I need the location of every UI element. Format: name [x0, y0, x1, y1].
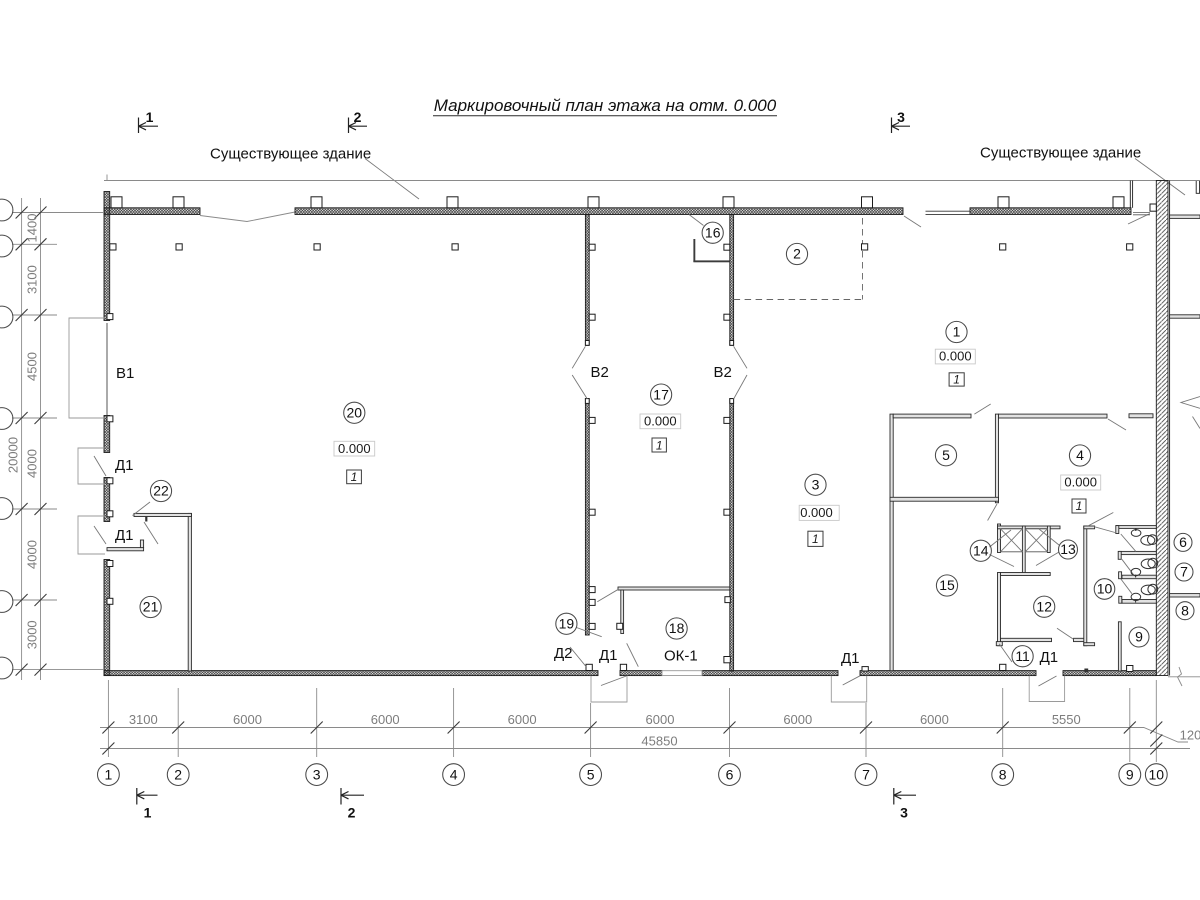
svg-text:Существующее здание: Существующее здание	[210, 146, 371, 163]
svg-text:3100: 3100	[129, 712, 158, 727]
svg-text:Д1: Д1	[1040, 649, 1059, 666]
svg-text:45850: 45850	[641, 733, 677, 748]
svg-text:2: 2	[354, 109, 362, 125]
svg-text:8: 8	[1181, 602, 1189, 618]
svg-text:6: 6	[726, 766, 734, 782]
svg-text:3: 3	[812, 477, 820, 493]
svg-text:9: 9	[1135, 629, 1143, 645]
svg-text:1: 1	[953, 373, 960, 387]
svg-text:8: 8	[999, 766, 1007, 782]
svg-text:13: 13	[1060, 541, 1076, 557]
svg-text:3: 3	[900, 805, 908, 821]
svg-text:1: 1	[105, 766, 113, 782]
svg-text:3: 3	[313, 766, 321, 782]
svg-text:12: 12	[1036, 598, 1052, 614]
svg-text:21: 21	[143, 599, 159, 615]
svg-text:6000: 6000	[371, 712, 400, 727]
svg-text:0.000: 0.000	[338, 441, 371, 456]
svg-text:15: 15	[939, 577, 955, 593]
svg-text:6000: 6000	[783, 712, 812, 727]
svg-text:1400: 1400	[25, 214, 40, 243]
svg-text:В2: В2	[714, 364, 732, 381]
svg-text:2: 2	[174, 766, 182, 782]
svg-text:1: 1	[351, 470, 358, 484]
svg-text:20000: 20000	[6, 437, 21, 473]
svg-text:20: 20	[347, 405, 363, 421]
svg-text:6: 6	[1179, 534, 1187, 550]
svg-text:ОК-1: ОК-1	[664, 648, 698, 665]
svg-text:5: 5	[942, 447, 950, 463]
svg-text:1: 1	[656, 438, 663, 452]
svg-text:В2: В2	[591, 364, 609, 381]
svg-text:Д1: Д1	[841, 650, 860, 667]
svg-text:3100: 3100	[25, 265, 40, 294]
svg-text:3000: 3000	[25, 620, 40, 649]
svg-text:17: 17	[653, 386, 669, 402]
svg-text:6000: 6000	[920, 712, 949, 727]
svg-text:0.000: 0.000	[800, 505, 833, 520]
svg-text:4000: 4000	[25, 540, 40, 569]
svg-text:9: 9	[1126, 766, 1134, 782]
svg-text:7: 7	[862, 766, 870, 782]
svg-text:4000: 4000	[25, 449, 40, 478]
svg-text:1: 1	[1076, 499, 1083, 513]
svg-text:1: 1	[146, 109, 154, 125]
svg-text:7: 7	[1180, 564, 1188, 580]
svg-text:5550: 5550	[1052, 712, 1081, 727]
svg-text:16: 16	[705, 224, 721, 240]
svg-text:19: 19	[559, 616, 575, 632]
svg-text:2: 2	[348, 805, 356, 821]
svg-text:4: 4	[1076, 447, 1084, 463]
svg-text:1: 1	[812, 532, 819, 546]
svg-text:14: 14	[973, 543, 989, 559]
svg-text:1: 1	[953, 324, 961, 340]
svg-text:4: 4	[450, 766, 458, 782]
svg-text:Существующее здание: Существующее здание	[980, 145, 1141, 162]
svg-text:Д1: Д1	[599, 647, 618, 664]
svg-text:18: 18	[669, 620, 685, 636]
svg-text:4500: 4500	[25, 352, 40, 381]
svg-text:0.000: 0.000	[939, 349, 972, 364]
svg-text:Д1: Д1	[115, 457, 134, 474]
svg-text:6000: 6000	[508, 712, 537, 727]
svg-text:0.000: 0.000	[644, 414, 677, 429]
svg-text:1: 1	[144, 805, 152, 821]
svg-text:Маркировочный план этажа на от: Маркировочный план этажа на отм. 0.000	[434, 96, 777, 115]
svg-text:В1: В1	[116, 365, 134, 382]
svg-text:2: 2	[793, 246, 801, 262]
svg-text:0.000: 0.000	[1064, 475, 1097, 490]
svg-text:Д1: Д1	[115, 527, 134, 544]
svg-text:22: 22	[153, 483, 169, 499]
svg-text:Д2: Д2	[554, 645, 573, 662]
svg-text:10: 10	[1149, 766, 1165, 782]
svg-text:11: 11	[1015, 648, 1030, 664]
svg-text:5: 5	[587, 766, 595, 782]
svg-text:3: 3	[897, 109, 905, 125]
svg-text:6000: 6000	[646, 712, 675, 727]
svg-text:10: 10	[1097, 581, 1113, 597]
svg-text:120: 120	[1180, 728, 1200, 743]
svg-text:6000: 6000	[233, 712, 262, 727]
